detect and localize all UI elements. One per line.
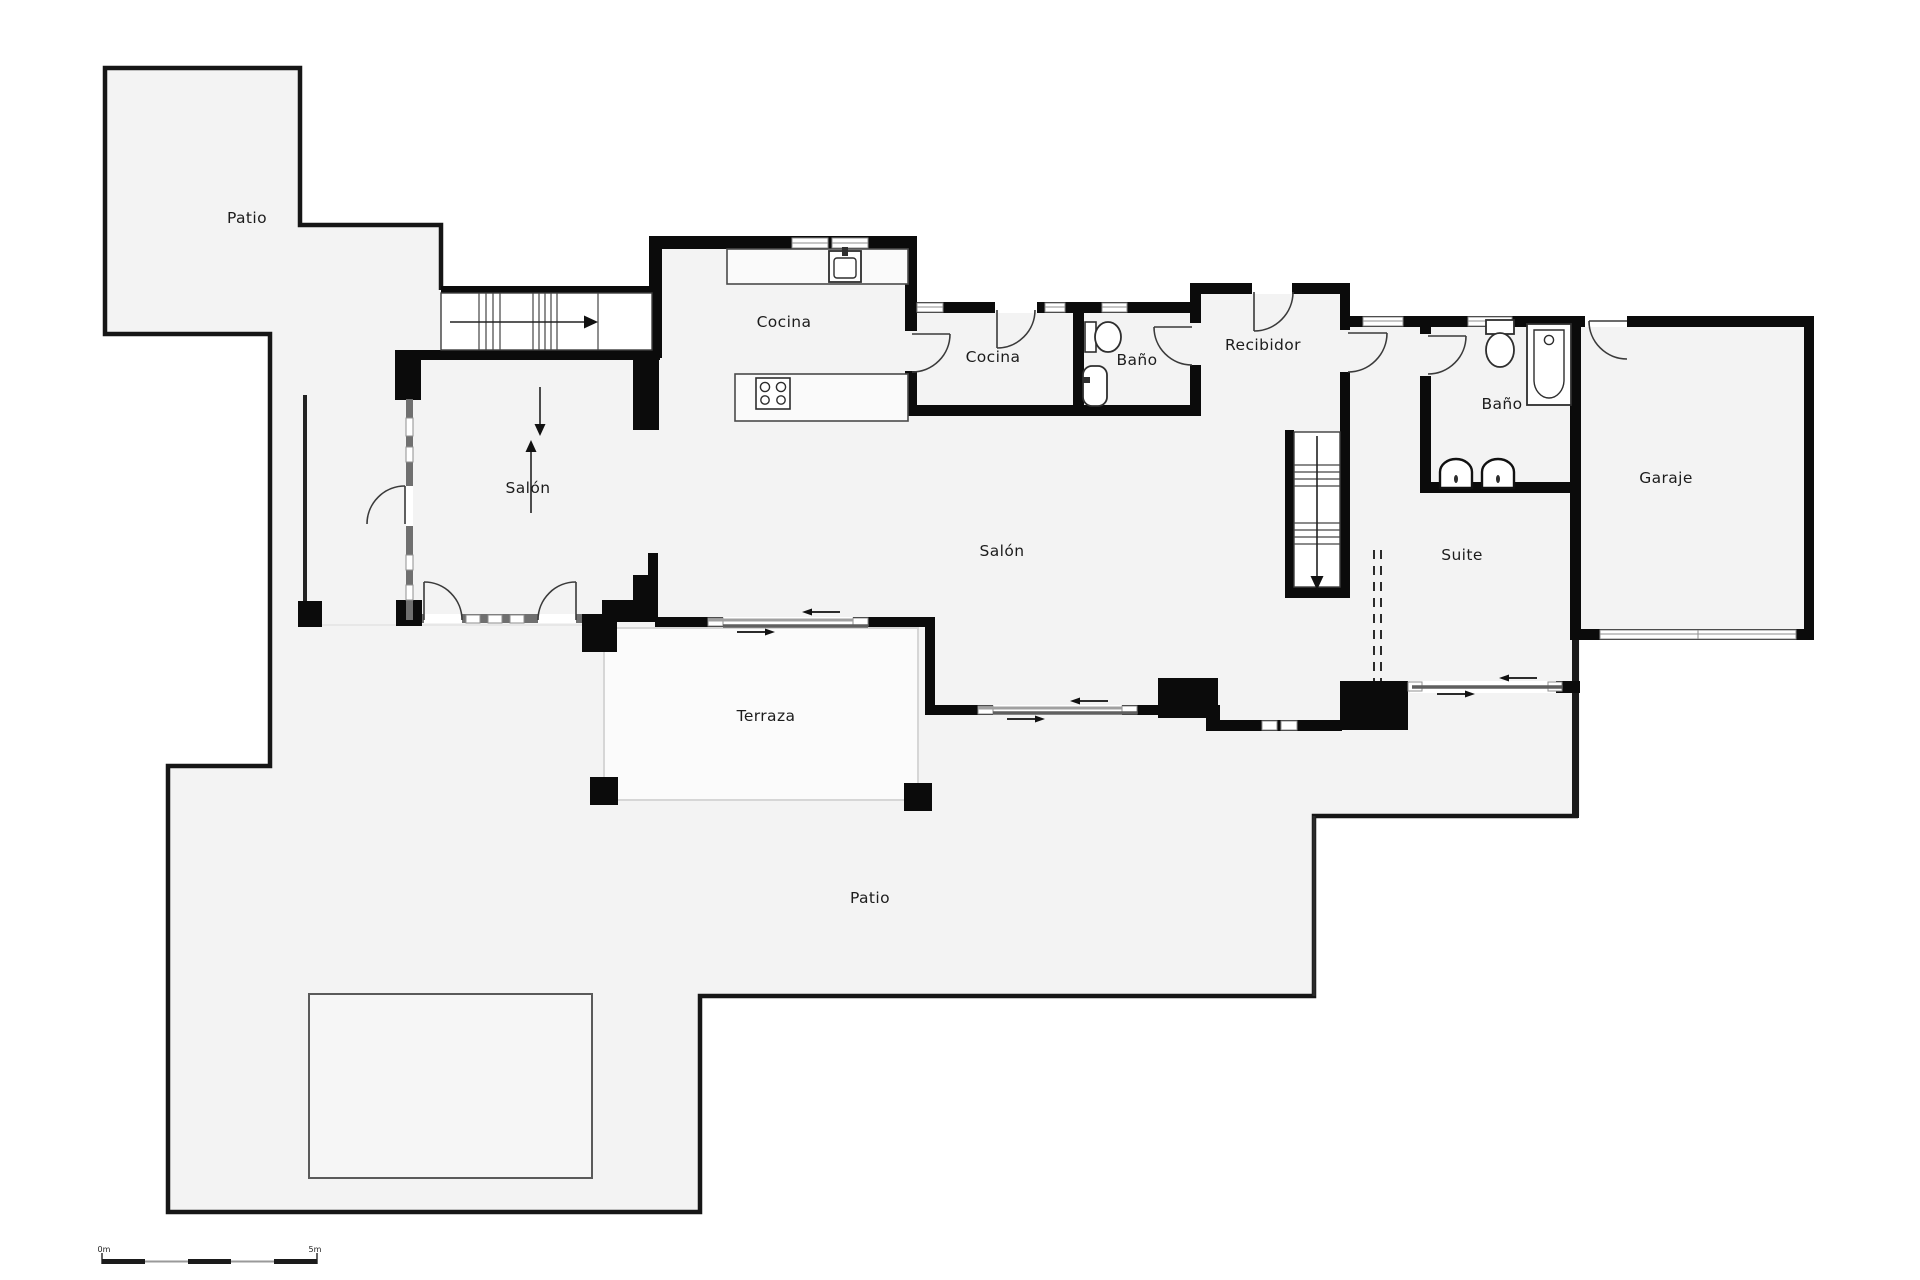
window-icon	[832, 238, 868, 248]
room-label-bano-small: Baño	[1116, 351, 1157, 369]
window-icon	[1102, 303, 1127, 312]
window-icon	[466, 615, 480, 623]
window-icon	[1363, 317, 1403, 326]
window-icon	[406, 447, 413, 462]
toilet-icon	[1085, 322, 1121, 352]
window-icon	[792, 238, 828, 248]
scale-bar: 0m 5m	[98, 1245, 322, 1264]
bathtub-icon	[1527, 324, 1571, 405]
window-icon	[1045, 303, 1065, 312]
room-label-patio-top: Patio	[227, 209, 267, 227]
staircase-entry	[441, 293, 652, 350]
window-icon	[510, 615, 524, 623]
floorplan-page: Patio Salón Cocina Cocina Baño Recibidor…	[0, 0, 1920, 1280]
window-icon	[406, 418, 413, 436]
window-icon	[406, 585, 413, 600]
stove-icon	[756, 378, 790, 409]
window-icon	[1600, 630, 1796, 639]
room-label-cocina-small: Cocina	[966, 348, 1021, 366]
kitchen-island	[735, 374, 908, 421]
room-label-suite: Suite	[1441, 546, 1483, 564]
pool	[309, 994, 592, 1178]
room-label-salon-main: Salón	[980, 542, 1025, 560]
window-icon	[488, 615, 502, 623]
toilet-icon	[1486, 320, 1514, 367]
room-label-terraza: Terraza	[736, 707, 796, 725]
bidet-icon	[1083, 366, 1107, 406]
room-label-cocina-main: Cocina	[757, 313, 812, 331]
floorplan-drawing: Patio Salón Cocina Cocina Baño Recibidor…	[0, 0, 1920, 1280]
room-label-bano-suite: Baño	[1481, 395, 1522, 413]
room-label-recibidor: Recibidor	[1225, 336, 1301, 354]
room-label-garaje: Garaje	[1639, 469, 1693, 487]
staircase-down	[1294, 432, 1340, 590]
window-icon	[917, 303, 943, 312]
scale-start-label: 0m	[98, 1245, 111, 1254]
sink-icon	[829, 247, 861, 282]
room-label-patio-bottom: Patio	[850, 889, 890, 907]
window-icon	[406, 555, 413, 570]
kitchen-counter	[727, 247, 908, 284]
washbasin-icon	[1482, 459, 1514, 488]
washbasin-icon	[1440, 459, 1472, 488]
scale-end-label: 5m	[309, 1245, 322, 1254]
room-label-salon-left: Salón	[506, 479, 551, 497]
